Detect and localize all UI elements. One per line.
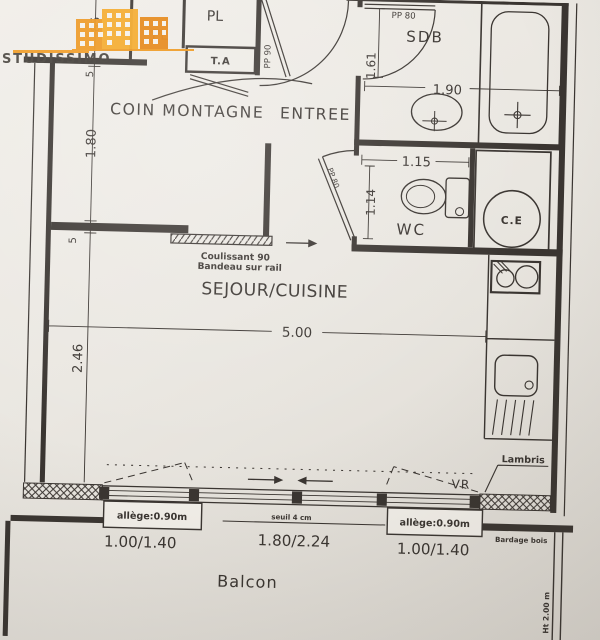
dim-label-246: 2.46 xyxy=(71,344,87,374)
wall-sdb-left-bottom xyxy=(354,76,361,146)
sliding-window-arrows xyxy=(248,475,333,485)
wc-door xyxy=(316,150,357,241)
room-label-coin-montagne: COIN MONTAGNE xyxy=(110,99,265,122)
balcony-wall-left xyxy=(3,521,11,636)
dim-label-180: 1.80 xyxy=(84,129,100,159)
ce-closet-box xyxy=(474,150,551,251)
annotation-seuil: seuil 4 cm xyxy=(271,512,311,522)
room-label-sdb: SDB xyxy=(406,28,444,47)
hatched-wall-right xyxy=(480,494,551,511)
facade-line-left xyxy=(25,63,35,482)
door-label-wc: PP 80 xyxy=(325,167,341,190)
dim-5m xyxy=(48,320,485,343)
wc-door-arc xyxy=(322,150,357,158)
balcony-separation-right xyxy=(552,532,563,640)
floorplan-photo: PL PL T.A PP 90 PP 80 SDB 1.61 1.90 COIN… xyxy=(0,0,600,640)
annotation-allege-left: allège:0.90m xyxy=(117,510,188,523)
sliding-panel xyxy=(171,234,272,246)
bathtub xyxy=(478,3,562,146)
wall-sejour-divider xyxy=(51,222,189,233)
kitchen-sink xyxy=(492,355,537,436)
sink-drain-icon xyxy=(525,381,533,389)
room-label-sejour: SEJOUR/CUISINE xyxy=(201,279,348,303)
dotted-opening-line xyxy=(107,465,477,474)
dim-label-115: 1.15 xyxy=(402,155,432,171)
wall-top-sdb xyxy=(347,0,482,4)
lambris-leader xyxy=(485,465,548,494)
burner-small-icon xyxy=(497,270,515,288)
ta-label: T.A xyxy=(211,56,231,67)
sink-drainboard xyxy=(492,399,533,435)
entry-door xyxy=(260,0,349,88)
dim-label-5-mid: 5 xyxy=(68,237,79,244)
burner-large-icon xyxy=(515,266,538,289)
ce-label: C.E xyxy=(501,215,523,228)
washbasin xyxy=(411,93,462,132)
window-dim-middle: 1.80/2.24 xyxy=(257,531,330,551)
sdb-door-leaf xyxy=(365,4,436,10)
dim-label-190: 1.90 xyxy=(433,83,463,99)
wall-sdb-left-top xyxy=(357,0,362,7)
window-dim-right: 1.00/1.40 xyxy=(397,540,470,560)
room-label-balcon: Balcon xyxy=(217,572,278,592)
bathtub-tap-icon xyxy=(504,102,531,129)
annotation-separation-height: Ht 2.00 m xyxy=(541,592,551,634)
toilet xyxy=(401,177,470,218)
studissimo-brand: STUDISSIMO xyxy=(2,52,111,67)
room-label-entree: ENTREE xyxy=(280,103,351,124)
door-label-entry: PP 90 xyxy=(263,44,274,68)
wall-left-outer xyxy=(40,57,55,482)
annotation-bardage: Bardage bois xyxy=(495,535,548,545)
wall-entry-partition xyxy=(263,143,271,236)
hatched-wall-left xyxy=(23,483,102,500)
annotation-vr: VR xyxy=(451,477,470,491)
floorplan-drawing: PL PL T.A PP 90 PP 80 SDB 1.61 1.90 COIN… xyxy=(0,0,600,640)
entry-door-arc xyxy=(260,0,349,88)
balcony-slab-right xyxy=(479,523,573,532)
wc-door-leaf xyxy=(316,157,356,241)
annotation-bandeau: Bandeau sur rail xyxy=(197,262,281,274)
dim-label-5m: 5.00 xyxy=(282,325,313,342)
annotation-allege-right: allège:0.90m xyxy=(399,517,470,530)
dim-label-114: 1.14 xyxy=(364,188,379,216)
dim-label-161: 1.61 xyxy=(364,52,379,79)
floorplan-drawing-wrap: PL PL T.A PP 90 PP 80 SDB 1.61 1.90 COIN… xyxy=(0,0,600,640)
door-label-sdb: PP 80 xyxy=(391,11,415,22)
sliding-arrow xyxy=(286,239,317,248)
window-left-swing xyxy=(104,461,193,485)
window-dim-left: 1.00/1.40 xyxy=(104,532,177,552)
annotation-lambris: Lambris xyxy=(502,454,546,466)
studissimo-logo: STUDISSIMO xyxy=(0,0,210,80)
cooktop-hatch xyxy=(493,261,510,274)
cooktop xyxy=(491,261,540,293)
balcony-slab-left xyxy=(10,515,103,523)
studissimo-building-icon xyxy=(72,7,194,51)
room-label-wc: WC xyxy=(396,220,426,239)
